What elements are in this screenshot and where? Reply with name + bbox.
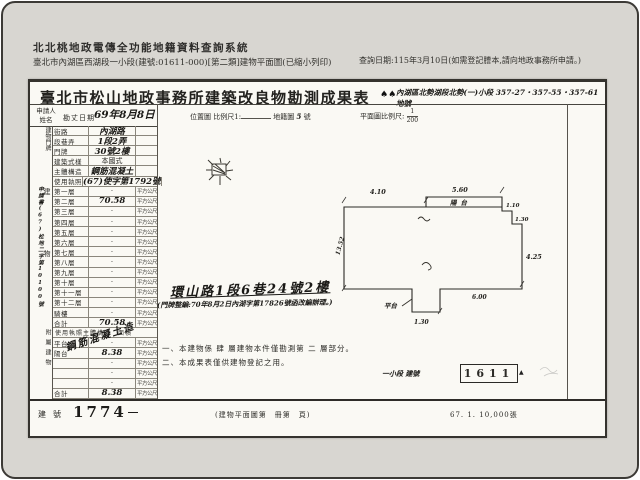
row-value: 70.58	[89, 196, 135, 206]
table-right-line	[157, 104, 158, 399]
row-unit: 平方公尺	[135, 298, 158, 307]
table-row: 第四層平方公尺	[53, 217, 158, 227]
row-unit	[135, 146, 158, 155]
row-label: 第一層	[53, 187, 89, 196]
plan-scale-label: 平面圖比例尺:	[360, 113, 404, 121]
cadastral-map-no: 5	[297, 112, 302, 121]
row-value	[89, 309, 135, 317]
plan-scale-fraction: 1200	[407, 109, 418, 124]
dim-bottom: 6.00	[472, 294, 487, 301]
table-row: 平方公尺	[53, 359, 158, 369]
row-unit	[161, 177, 162, 186]
row-value	[89, 248, 135, 256]
note-1: 一、本建物係 肆 層建物本件僅勘測第 二 層部分。	[162, 343, 354, 354]
table-row: 平方公尺	[53, 379, 158, 389]
interior-mark	[422, 263, 431, 271]
row-label: 第六層	[53, 237, 89, 246]
dim-right: 4.25	[526, 253, 542, 261]
row-label: 第九層	[53, 268, 89, 277]
building-no-label: 建號	[38, 410, 68, 419]
location-scale-label: 比例尺1:	[213, 113, 241, 121]
plan-scale: 平面圖比例尺: 1200	[360, 109, 418, 124]
table-row: 第十二層平方公尺	[53, 298, 158, 308]
row-unit: 平方公尺	[135, 217, 158, 226]
row-unit: 平方公尺	[135, 278, 158, 287]
row-value	[89, 298, 135, 306]
row-label: 第十一層	[53, 288, 89, 297]
table-row: 第一層平方公尺	[53, 187, 158, 197]
row-unit	[135, 136, 158, 145]
dim-top-left: 4.10	[370, 188, 386, 196]
row-unit: 平方公尺	[135, 237, 158, 246]
note-2: 二、本成果表僅供建物登記之用。	[162, 357, 290, 368]
row-label: 使用執照	[53, 177, 83, 186]
table-row: 騎樓平方公尺	[53, 308, 158, 318]
row-label: 合計	[53, 318, 89, 327]
floor-plan-drawing: 4.10 5.60 1.10 1.30 4.25 1.30 6.00 13.52…	[330, 167, 545, 332]
row-unit: 平方公尺	[135, 369, 158, 378]
measurement-table: 街路內湖路段巷弄1段2弄門牌30號2樓建築式樣本國式主體構造鋼筋混凝土使用執照(…	[52, 126, 158, 399]
row-unit	[135, 126, 158, 135]
building-no-box: 1611	[460, 364, 518, 383]
row-label	[53, 379, 89, 388]
platform-label: 平台	[384, 302, 398, 310]
row-label: 第二層	[53, 197, 89, 206]
row-value: 8.38	[89, 388, 135, 398]
row-label: 合計	[53, 389, 89, 398]
row-unit: 平方公尺	[135, 288, 158, 297]
row-value	[89, 268, 135, 276]
section-building-no-prefix: 一小段 建號	[382, 369, 419, 379]
scale-blank	[241, 112, 271, 119]
table-row: 第五層平方公尺	[53, 227, 158, 237]
table-row: 合計8.38平方公尺	[53, 389, 158, 399]
row-value	[89, 369, 135, 377]
table-row: 第九層平方公尺	[53, 268, 158, 278]
document-subtitle: 臺北市內湖區西湖段一小段(建號:01611-000)[第二類]建物平面圖(已縮小…	[33, 56, 331, 68]
cadastral-map-label: 地籍圖	[273, 113, 294, 121]
row-value: 8.38	[89, 348, 135, 358]
ink-mark-icon: ▲	[519, 369, 524, 376]
building-serial: 建號 1774	[38, 402, 138, 421]
table-row: 門牌30號2樓	[53, 146, 158, 156]
viewer-window: 北北桃地政電傳全功能地籍資料查詢系統 臺北市內湖區西湖段一小段(建號:01611…	[1, 1, 639, 479]
row-label: 街路	[53, 126, 89, 135]
print-code: 67. 1. 10,000張	[450, 410, 518, 420]
application-number: 申請書(67)松地二字第10100號	[32, 186, 42, 398]
row-unit: 平方公尺	[135, 318, 158, 327]
row-label: 第七層	[53, 247, 89, 256]
dim-bottom-left: 1.30	[414, 319, 429, 326]
row-value: (67)使字第1792號	[83, 175, 161, 187]
row-unit: 平方公尺	[135, 227, 158, 236]
row-label: 騎樓	[53, 308, 89, 317]
row-label	[53, 369, 89, 378]
ink-stamp-icon: ♠♠	[380, 90, 396, 100]
row-label: 第十二層	[53, 298, 89, 307]
row-unit: 平方公尺	[135, 359, 158, 368]
table-row: 第二層70.58平方公尺	[53, 197, 158, 207]
location-map-scale: 位置圖 比例尺1: 地籍圖 5 號	[190, 112, 311, 122]
row-unit: 平方公尺	[135, 338, 158, 347]
row-value	[89, 228, 135, 236]
location-map-label: 位置圖	[190, 113, 211, 121]
row-label: 建築式樣	[53, 156, 89, 165]
scanned-survey-form: 臺北市松山地政事務所建築改良物勘測成果表 ♠♠ 內湖區北勢湖段北勢(一)小段 3…	[28, 79, 607, 438]
pencil-scribble	[538, 364, 564, 380]
row-label: 第五層	[53, 227, 89, 236]
row-value	[89, 258, 135, 266]
row-label: 第十層	[53, 278, 89, 287]
row-label: 第八層	[53, 257, 89, 266]
survey-date-label: 勘丈日期	[63, 113, 95, 123]
land-number-line: 內湖區北勢湖段北勢(一)小段 357-27・357-55・357-61 地號	[396, 88, 602, 109]
table-row: 第十一層平方公尺	[53, 288, 158, 298]
row-value	[89, 218, 135, 226]
survey-date-value: 69年8月8日	[94, 107, 155, 122]
group-label-building: 建物	[42, 188, 52, 326]
right-column-line	[567, 104, 568, 399]
table-row: 第七層平方公尺	[53, 247, 158, 257]
row-unit: 平方公尺	[135, 389, 158, 398]
title-rule	[30, 104, 605, 105]
row-unit: 平方公尺	[135, 379, 158, 388]
row-unit: 平方公尺	[135, 197, 158, 206]
table-row: 第八層平方公尺	[53, 257, 158, 267]
group-label-address: 建物門牌	[42, 127, 52, 156]
group-label-annex: 附屬建物	[42, 329, 52, 397]
dim-top-right: 5.60	[452, 186, 468, 194]
interior-mark	[418, 217, 430, 221]
table-row: 第六層平方公尺	[53, 237, 158, 247]
row-value	[89, 288, 135, 296]
book-page-note: (建物平面圖第 冊第 頁)	[215, 410, 310, 420]
system-title: 北北桃地政電傳全功能地籍資料查詢系統	[33, 40, 249, 55]
row-unit: 平方公尺	[135, 257, 158, 266]
platform-arrow	[402, 299, 412, 306]
row-value	[89, 187, 135, 195]
query-date: 查詢日期:115年3月10日(如需登記謄本,請向地政事務所申請。)	[359, 55, 581, 66]
balcony-label: 陽台	[450, 199, 471, 207]
row-label: 段巷弄	[53, 136, 89, 145]
row-label: 第四層	[53, 217, 89, 226]
building-no-value: 1774	[73, 403, 138, 421]
row-unit: 平方公尺	[135, 247, 158, 256]
table-row: 第十層平方公尺	[53, 278, 158, 288]
row-value	[89, 238, 135, 246]
row-unit: 平方公尺	[135, 348, 158, 357]
table-row: 使用執照(67)使字第1792號	[53, 177, 158, 187]
row-value	[89, 207, 135, 215]
row-label: 門牌	[53, 146, 89, 155]
renumber-note: (門牌整編:70年8月2日內湖字第17826號函改編辦理。)	[157, 297, 333, 310]
row-label: 第三層	[53, 207, 89, 216]
row-unit	[135, 156, 158, 165]
row-value	[89, 278, 135, 286]
row-unit: 平方公尺	[135, 187, 158, 196]
cadastral-map-unit: 號	[304, 113, 311, 121]
row-value	[89, 359, 135, 367]
row-unit: 平方公尺	[135, 207, 158, 216]
applicant-name-label: 申請人 姓名	[32, 107, 60, 125]
row-unit: 平方公尺	[135, 308, 158, 317]
row-unit: 平方公尺	[135, 268, 158, 277]
table-row: 第三層平方公尺	[53, 207, 158, 217]
dim-step2: 1.30	[515, 217, 529, 223]
dim-step1: 1.10	[506, 203, 520, 209]
table-bottom-rule	[30, 399, 605, 401]
location-sketch-map	[200, 152, 240, 192]
table-row: 平方公尺	[53, 369, 158, 379]
row-label	[53, 359, 89, 368]
row-value	[89, 379, 135, 387]
